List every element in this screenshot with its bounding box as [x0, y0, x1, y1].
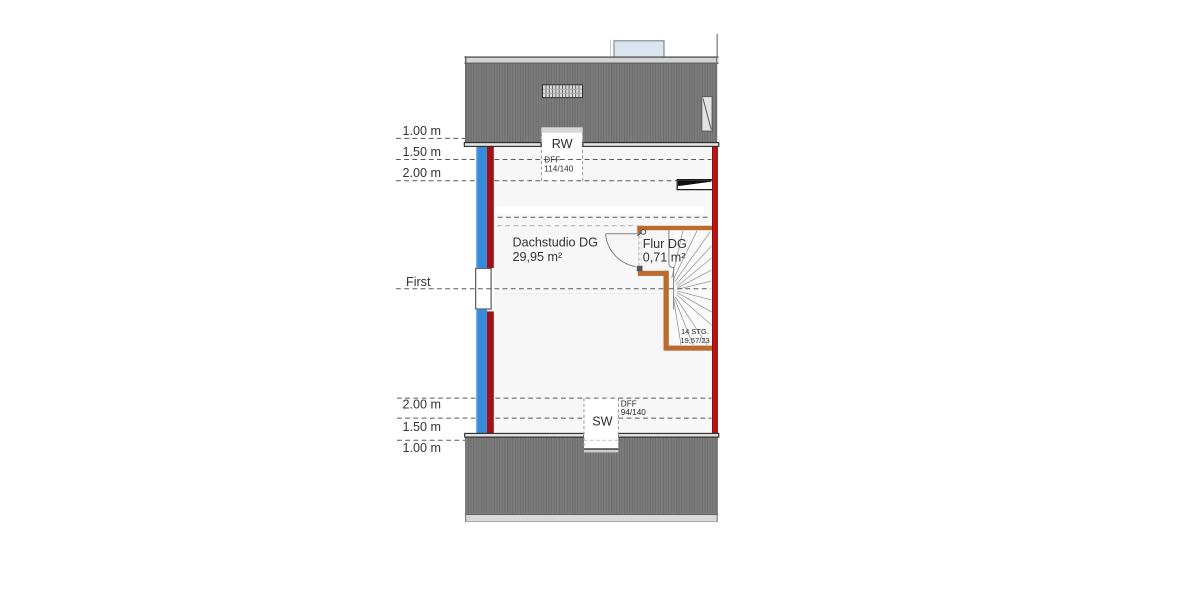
svg-text:1.00 m: 1.00 m — [403, 441, 442, 455]
svg-text:First: First — [406, 275, 431, 289]
svg-text:2.00 m: 2.00 m — [403, 166, 442, 180]
svg-text:Flur DG: Flur DG — [643, 237, 687, 251]
svg-text:Dachstudio DG: Dachstudio DG — [513, 235, 598, 249]
svg-text:19,57/23: 19,57/23 — [681, 336, 710, 345]
svg-text:DFF: DFF — [544, 156, 560, 165]
svg-text:14 STG.: 14 STG. — [681, 327, 709, 336]
svg-text:94/140: 94/140 — [621, 408, 646, 417]
svg-text:1.50 m: 1.50 m — [403, 145, 442, 159]
svg-text:RW: RW — [552, 137, 573, 151]
svg-text:SW: SW — [592, 414, 612, 428]
svg-text:0,71 m²: 0,71 m² — [643, 250, 686, 264]
svg-text:114/140: 114/140 — [544, 164, 573, 173]
svg-text:2.00 m: 2.00 m — [403, 398, 442, 412]
svg-text:1.50 m: 1.50 m — [403, 420, 442, 434]
svg-text:29,95 m²: 29,95 m² — [513, 250, 563, 264]
svg-text:1.00 m: 1.00 m — [403, 124, 442, 138]
